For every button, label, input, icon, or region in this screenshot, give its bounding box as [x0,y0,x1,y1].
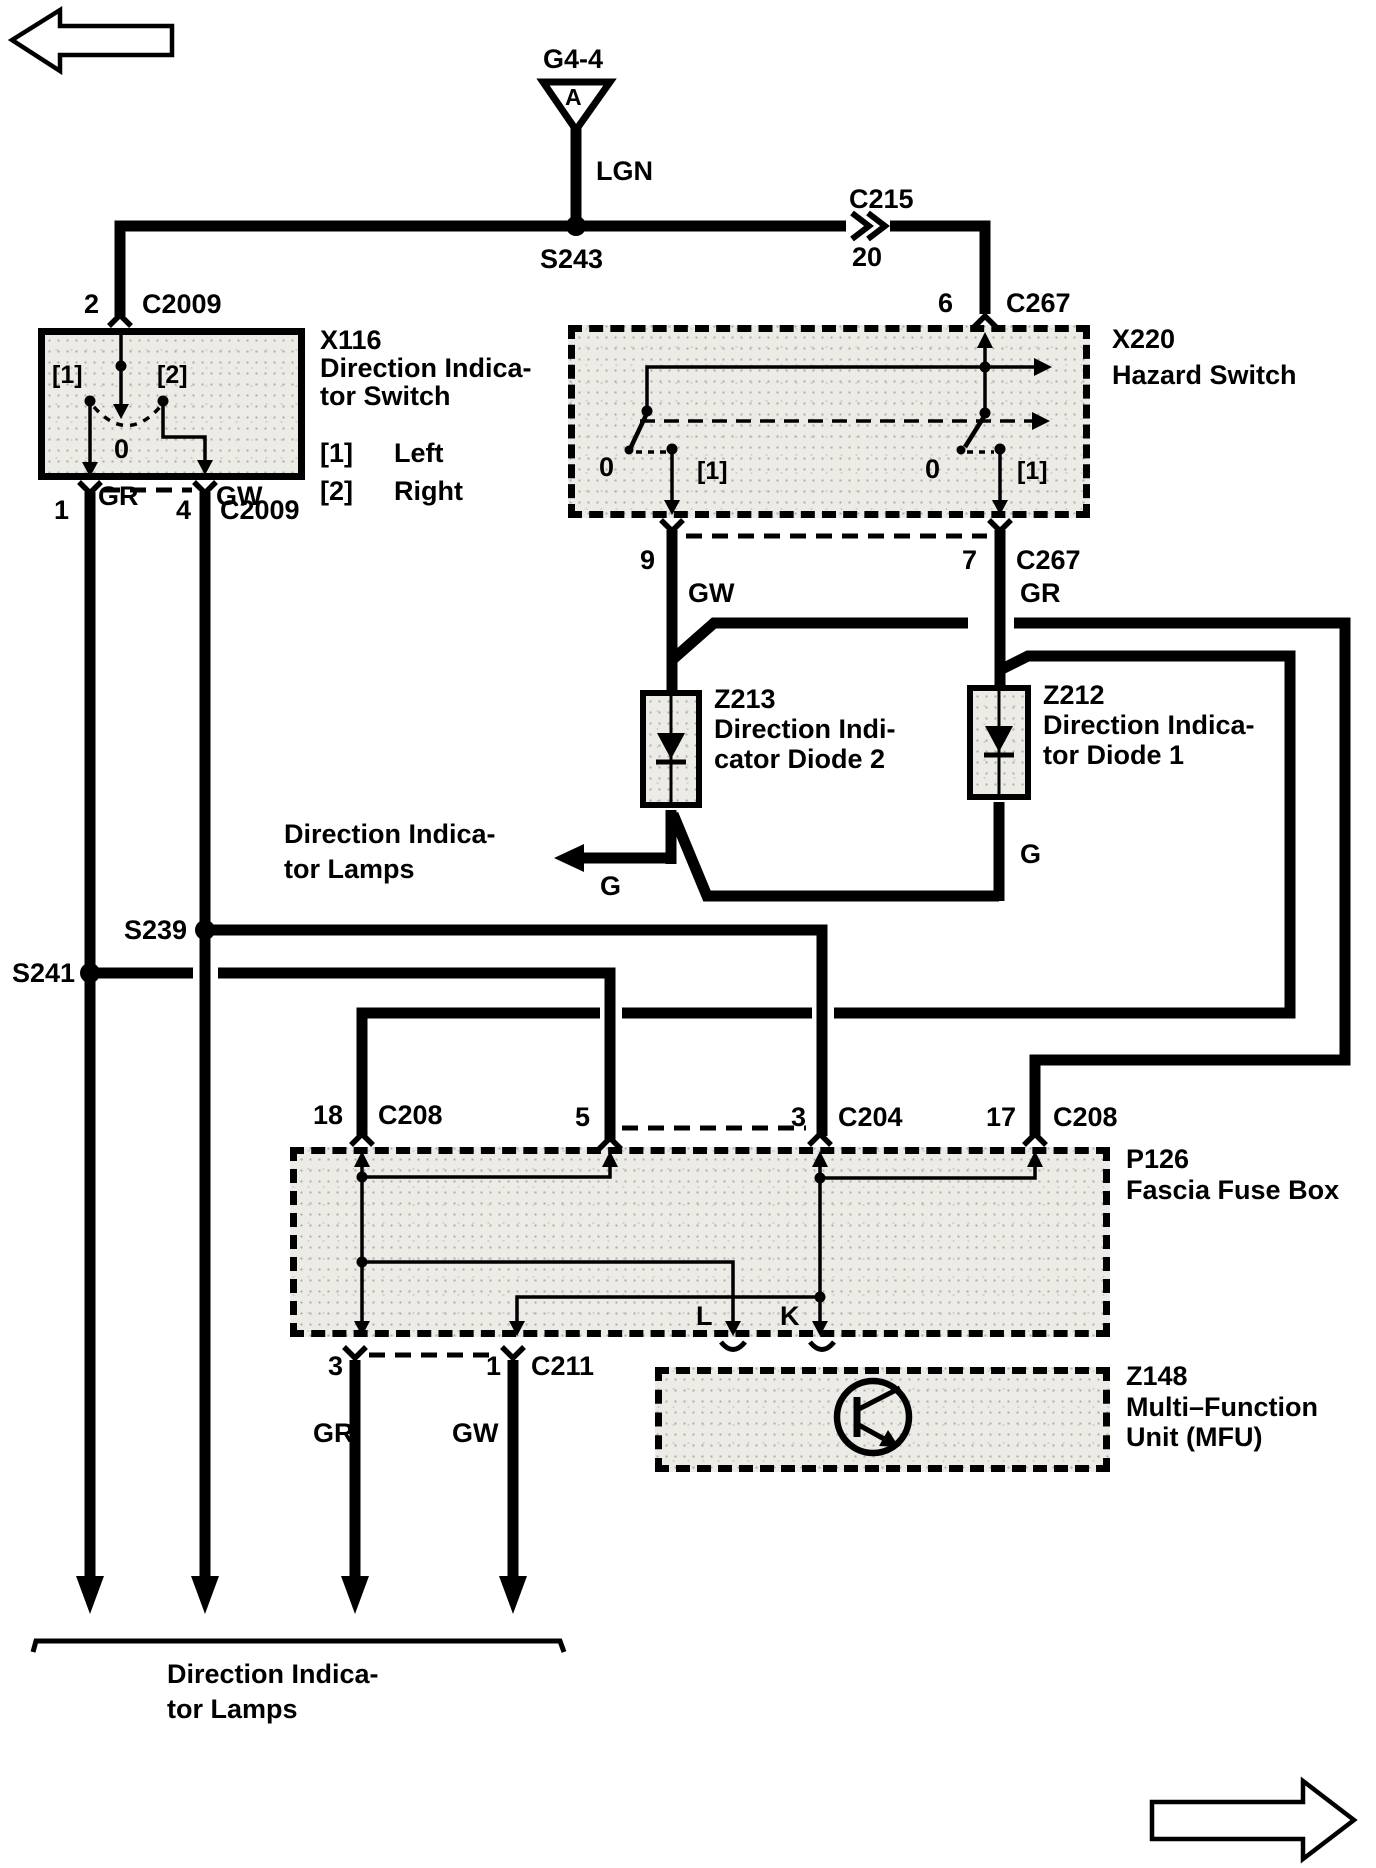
x116-legend2-key: [2] [320,478,353,505]
wire-lgn-label: LGN [596,158,653,185]
x116-legend2-val: Right [394,478,463,505]
x116-right-leg [163,403,205,462]
p126-name-label: Fascia Fuse Box [1126,1177,1339,1204]
p126-pin3-label: 3 [791,1104,806,1131]
x220-solid-row [647,367,1036,410]
p126-conn17-label: C208 [1053,1104,1118,1131]
x116-pos-left-label: [1] [52,363,83,388]
g-left-arrowhead [554,844,584,872]
wire-g-join [673,814,999,896]
x116-right-leg-arrow [197,460,213,475]
x116-wiper-arc [94,407,160,426]
splice-dot-s241 [80,963,100,983]
p126-pin5-label: 5 [575,1104,590,1131]
x116-left-leg-arrow [82,462,98,477]
splice-s241-label: S241 [12,960,75,987]
p126-id-label: P126 [1126,1146,1189,1173]
p126-out-l-label: L [696,1303,713,1330]
x220-left-lever [631,413,647,447]
x220-name-label: Hazard Switch [1112,362,1297,389]
x116-name1-label: Direction Indica- [320,355,532,382]
x220-left-out-arrow [664,500,680,515]
x220-left-on-label: [1] [697,459,728,484]
bottom-lamps-name1-label: Direction Indica- [167,1661,379,1688]
wire-gr-label: GR [98,483,139,510]
c215-connector-icon [852,213,885,239]
z212-triangle [985,726,1013,752]
z212-diode-icon [984,685,1014,800]
p126-colc211-down [509,1321,525,1336]
x116-common-dot [116,361,127,372]
p126-col3-up [812,1151,828,1167]
p126-pin17-label: 17 [986,1104,1016,1131]
p126-row-3-c211 [517,1297,820,1324]
lamp-arrow-4 [191,1576,219,1614]
next-page-arrow-icon [1152,1781,1354,1859]
mid-lamps-name2-label: tor Lamps [284,856,415,883]
ground-id-label: G4-4 [543,46,603,73]
x220-right-off-dot [957,446,966,455]
wire-g-left-label: G [600,873,621,900]
p126-col3-down [812,1321,828,1336]
z148-id-label: Z148 [1126,1363,1188,1390]
z212-name1-label: Direction Indica- [1043,712,1255,739]
p126-col5-up [602,1151,618,1167]
pin-forks [79,315,1046,1358]
transistor-collector [857,1388,900,1410]
x116-id-label: X116 [320,327,382,354]
p126-row-18-L [362,1262,733,1324]
wire-gr-mid-label: GR [1020,580,1061,607]
p126-col17-up [1027,1151,1043,1167]
pin-fork-p126-17 [1024,1134,1046,1145]
x220-left-off-label: 0 [599,454,614,481]
x116-pos-right-label: [2] [157,363,188,388]
x116-pin4-label: 4 [176,497,191,524]
z213-triangle [657,733,685,759]
c211-pin1-label: 1 [486,1353,501,1380]
x116-pin2-label: 2 [84,291,99,318]
c215-pin-label: 20 [852,244,882,271]
c211-pin3-label: 3 [328,1353,343,1380]
x116-common-arrow [113,404,129,419]
x220-internals [625,332,1053,515]
pin-fork-x116-2 [109,315,131,326]
wire-s239-feed [205,930,822,1136]
p126-conn3-label: C204 [838,1104,903,1131]
pin-fork-p126-5 [599,1138,621,1149]
p126-conn18-label: C208 [378,1102,443,1129]
p126-pin18-label: 18 [313,1102,343,1129]
pin-fork-x116-4 [194,482,216,493]
pin-fork-x220-9 [661,520,683,531]
lamp-bracket [33,1641,564,1652]
ground-pin-label: A [565,86,582,109]
lamp-arrow-c211-3 [341,1576,369,1614]
z213-name2-label: cator Diode 2 [714,746,885,773]
x220-pin9-label: 9 [640,547,655,574]
p126-colL-down [725,1321,741,1336]
splice-s239-label: S239 [124,917,187,944]
z148-name1-label: Multi–Function [1126,1394,1318,1421]
prev-page-arrow-icon [12,10,172,71]
c211-name-label: C211 [531,1353,594,1380]
p126-col18-up [354,1151,370,1167]
x220-right-out-arrow [992,500,1008,515]
x220-pin6-label: 6 [938,290,953,317]
z212-id-label: Z212 [1043,682,1105,709]
wire-gw-branch-a [672,623,968,660]
mfu-socket-cups [721,1342,834,1350]
splice-dot-s243 [566,216,586,236]
pin-fork-x220-6 [974,316,996,327]
lamp-arrow-c211-1 [499,1576,527,1614]
x220-left-off-dot [625,446,634,455]
wire-g-right-label: G [1020,841,1041,868]
splice-dot-s239 [195,920,215,940]
x220-id-label: X220 [1112,326,1175,353]
wire-gw-mid-label: GW [688,580,735,607]
x116-legend1-val: Left [394,440,444,467]
pin-fork-p126-18 [351,1134,373,1145]
z213-name1-label: Direction Indi- [714,716,896,743]
x220-dashed-row-arrow [1032,412,1050,430]
x116-name2-label: tor Switch [320,383,451,410]
mfu-cup-k [810,1342,834,1350]
c215-chevron-1 [852,213,869,239]
x220-pin7-label: 7 [962,547,977,574]
c211-wire-gr-label: GR [313,1420,354,1447]
p126-col18-down [354,1321,370,1336]
x220-conn-top-label: C267 [1006,290,1071,317]
x220-junction-dot-1 [980,362,991,373]
x116-pos-off-label: 0 [114,436,129,463]
splice-s243-label: S243 [540,246,603,273]
x220-right-lever [965,415,985,447]
pin-fork-x220-7 [989,520,1011,531]
pin-fork-c211-3 [344,1347,366,1358]
bottom-lamps-name2-label: tor Lamps [167,1696,298,1723]
x116-contact-left-dot [85,396,96,407]
x116-legend1-key: [1] [320,440,353,467]
transistor-circle [837,1381,909,1453]
x116-pin1-label: 1 [54,497,69,524]
z213-diode-icon [656,690,686,808]
c211-wire-gw-label: GW [452,1420,499,1447]
pin-fork-p126-3 [809,1134,831,1145]
connector-c215-label: C215 [849,186,914,213]
mid-lamps-name1-label: Direction Indica- [284,821,496,848]
transistor-emitter [857,1424,886,1440]
x220-conn-bottom-label: C267 [1016,547,1081,574]
p126-row-18-5 [362,1158,610,1177]
x220-right-on-label: [1] [1017,459,1048,484]
wiring-layer [0,0,1376,1868]
z212-name2-label: tor Diode 1 [1043,742,1184,769]
wire-lgn-bus-left [120,226,846,316]
pin-fork-c211-1 [502,1347,524,1358]
lamp-arrow-1 [76,1576,104,1614]
x116-internals [82,330,213,477]
x220-solid-row-arrow [1034,358,1052,376]
z148-name2-label: Unit (MFU) [1126,1424,1262,1451]
wire-gw-label: GW [216,483,263,510]
wiring-diagram-page: G4-4 A LGN S243 C215 20 2 C2009 X116 Dir… [0,0,1376,1868]
mfu-cup-l [721,1342,745,1350]
p126-row-3-17 [820,1158,1035,1178]
p126-out-k-label: K [780,1303,800,1330]
z213-id-label: Z213 [714,686,776,713]
x220-right-off-label: 0 [925,456,940,483]
transistor-icon [837,1381,909,1453]
x116-conn-top-label: C2009 [142,291,222,318]
